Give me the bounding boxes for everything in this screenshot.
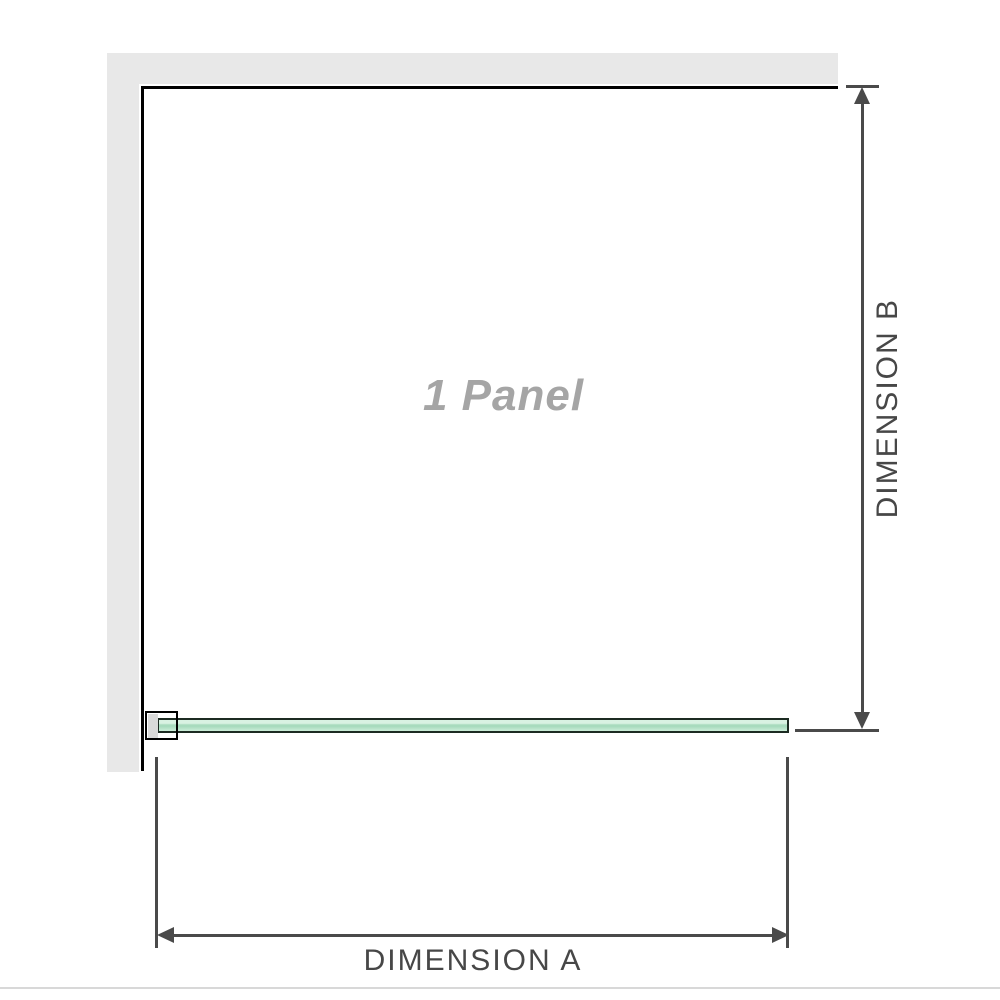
panel-area: 1 Panel (143, 87, 838, 718)
bottom-divider (0, 987, 1000, 989)
dimension-a-label: DIMENSION A (364, 944, 583, 977)
dimension-b: DIMENSION B (866, 87, 910, 730)
panel-count-label: 1 Panel (423, 371, 584, 421)
glass-panel (157, 718, 789, 733)
dimension-a-arrowhead-left-icon (157, 927, 174, 943)
dimension-b-line (861, 91, 864, 725)
dimension-a: DIMENSION A (157, 944, 789, 978)
dimension-a-right-extension-line (786, 757, 789, 948)
wall-segment-top (107, 53, 838, 84)
shower-panel-diagram: 1 Panel DIMENSION B DIMENSION A (0, 0, 1000, 1000)
dimension-a-arrowhead-right-icon (772, 927, 789, 943)
wall-bracket (145, 711, 178, 740)
dimension-a-left-extension-line (155, 757, 158, 948)
dimension-a-line (170, 934, 776, 937)
dimension-b-label: DIMENSION B (871, 298, 905, 518)
wall-segment-left (107, 53, 139, 772)
